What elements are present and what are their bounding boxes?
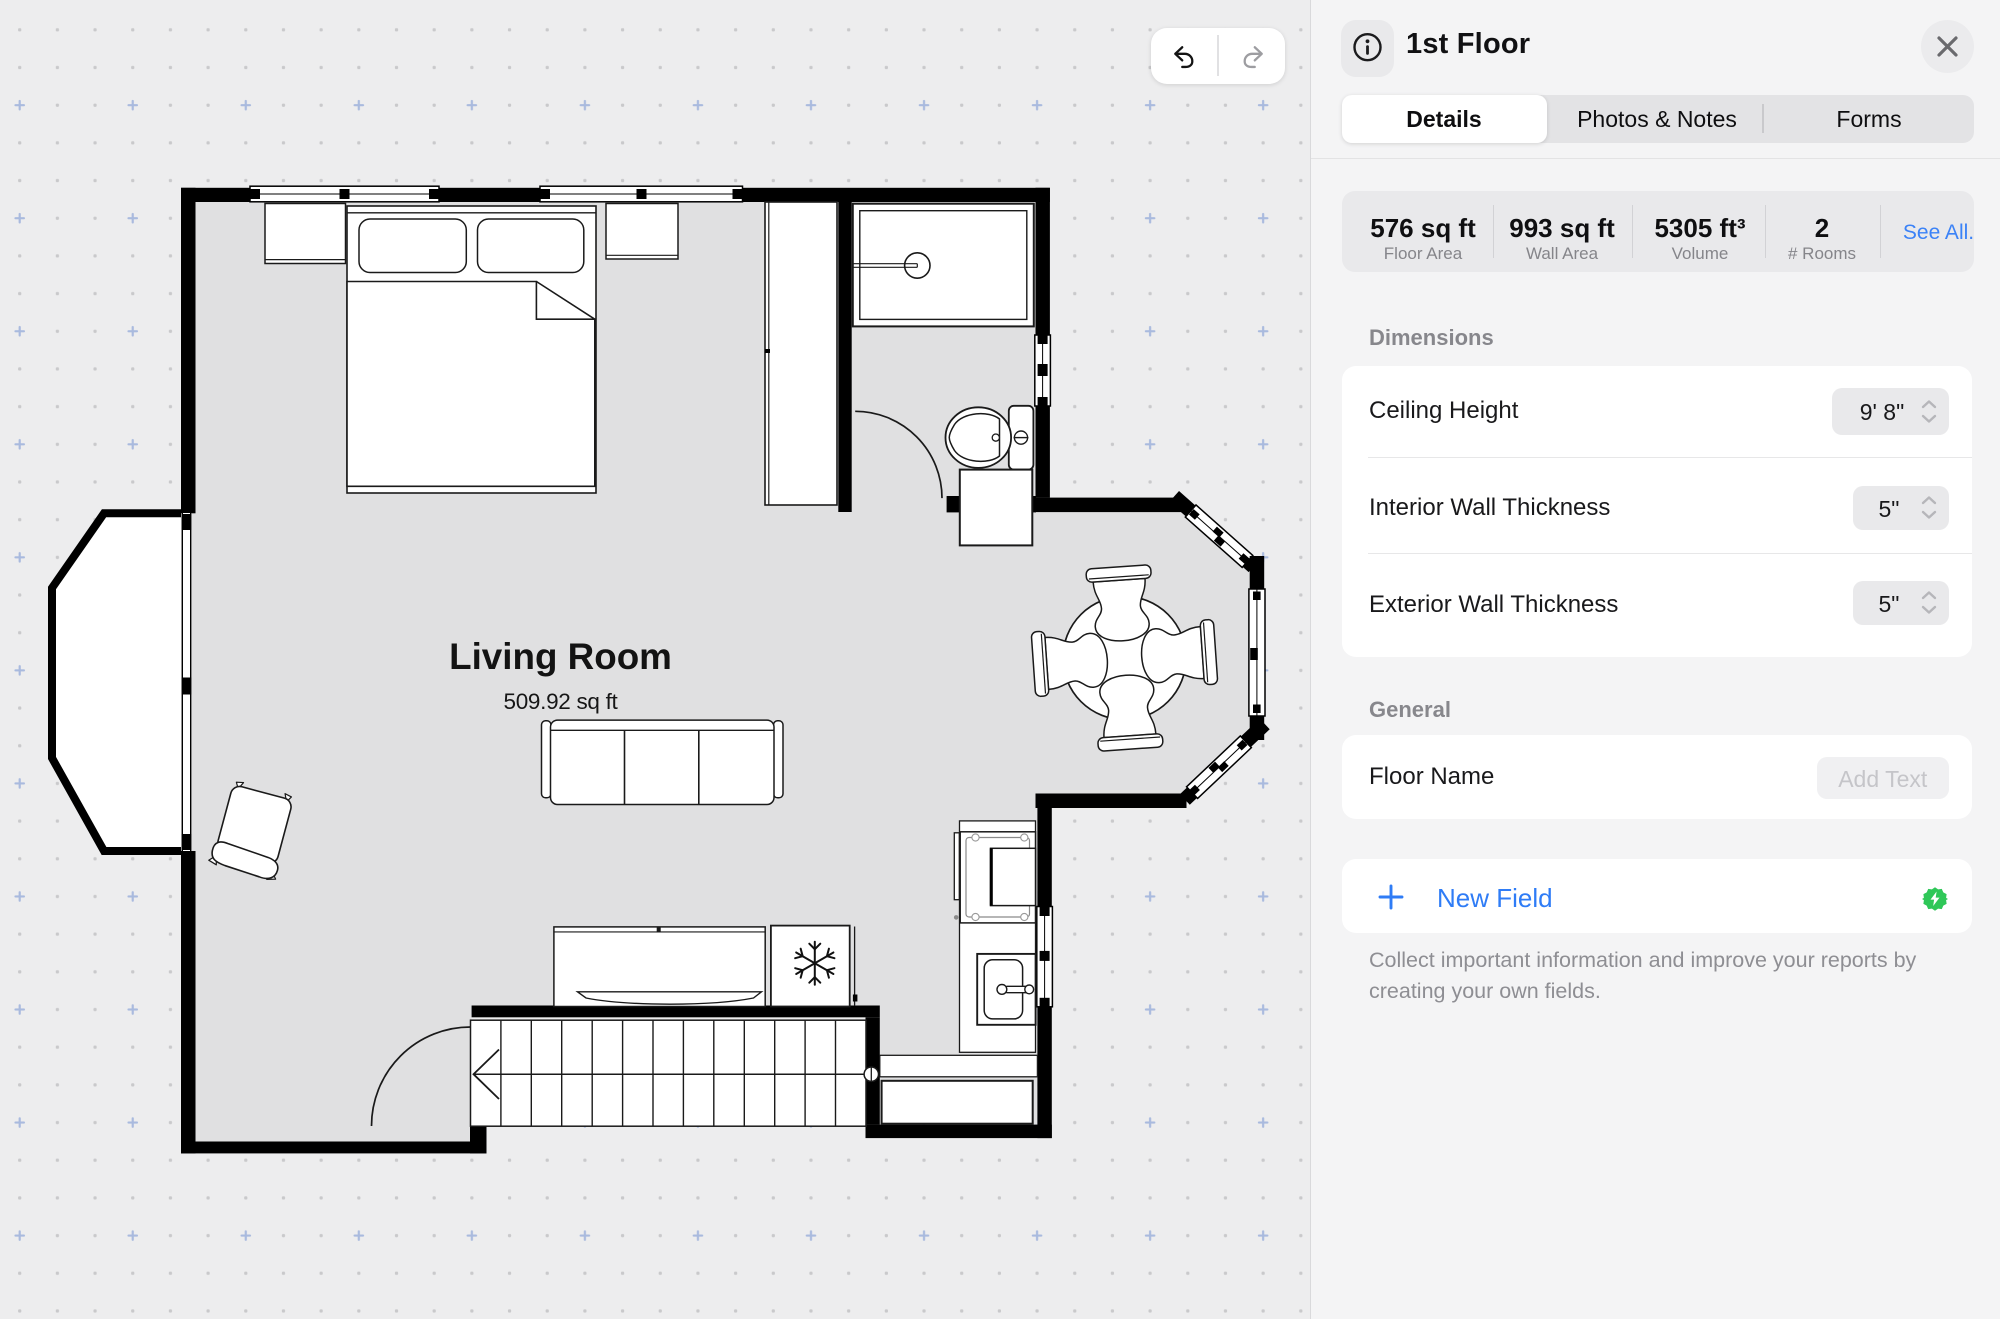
svg-text:509.92 sq ft: 509.92 sq ft (504, 689, 619, 714)
svg-text:Living Room: Living Room (449, 636, 672, 677)
